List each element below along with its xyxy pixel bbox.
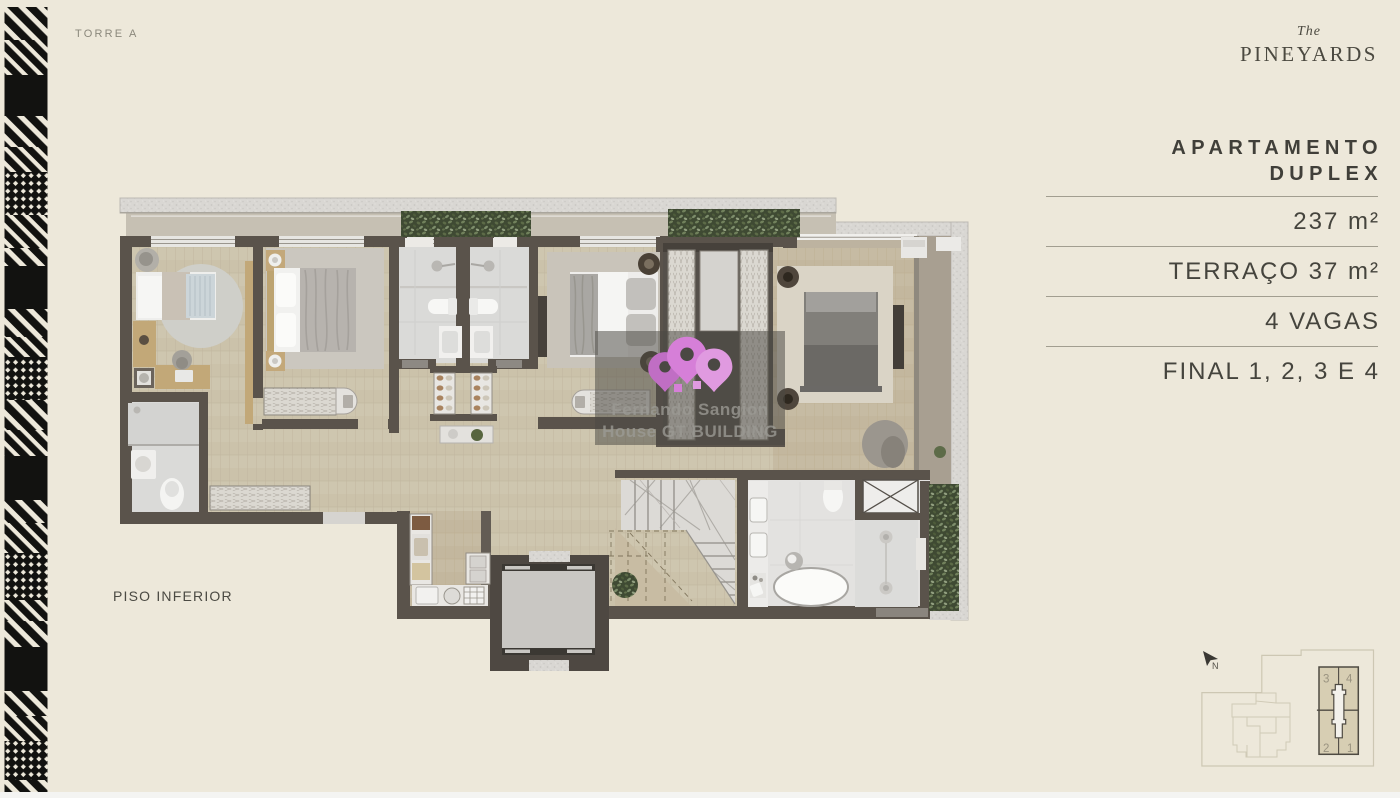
svg-text:4: 4 bbox=[1346, 674, 1353, 686]
svg-text:1: 1 bbox=[1347, 743, 1353, 755]
svg-text:2: 2 bbox=[1323, 743, 1329, 755]
svg-text:N: N bbox=[1212, 661, 1219, 671]
svg-text:3: 3 bbox=[1323, 674, 1329, 686]
